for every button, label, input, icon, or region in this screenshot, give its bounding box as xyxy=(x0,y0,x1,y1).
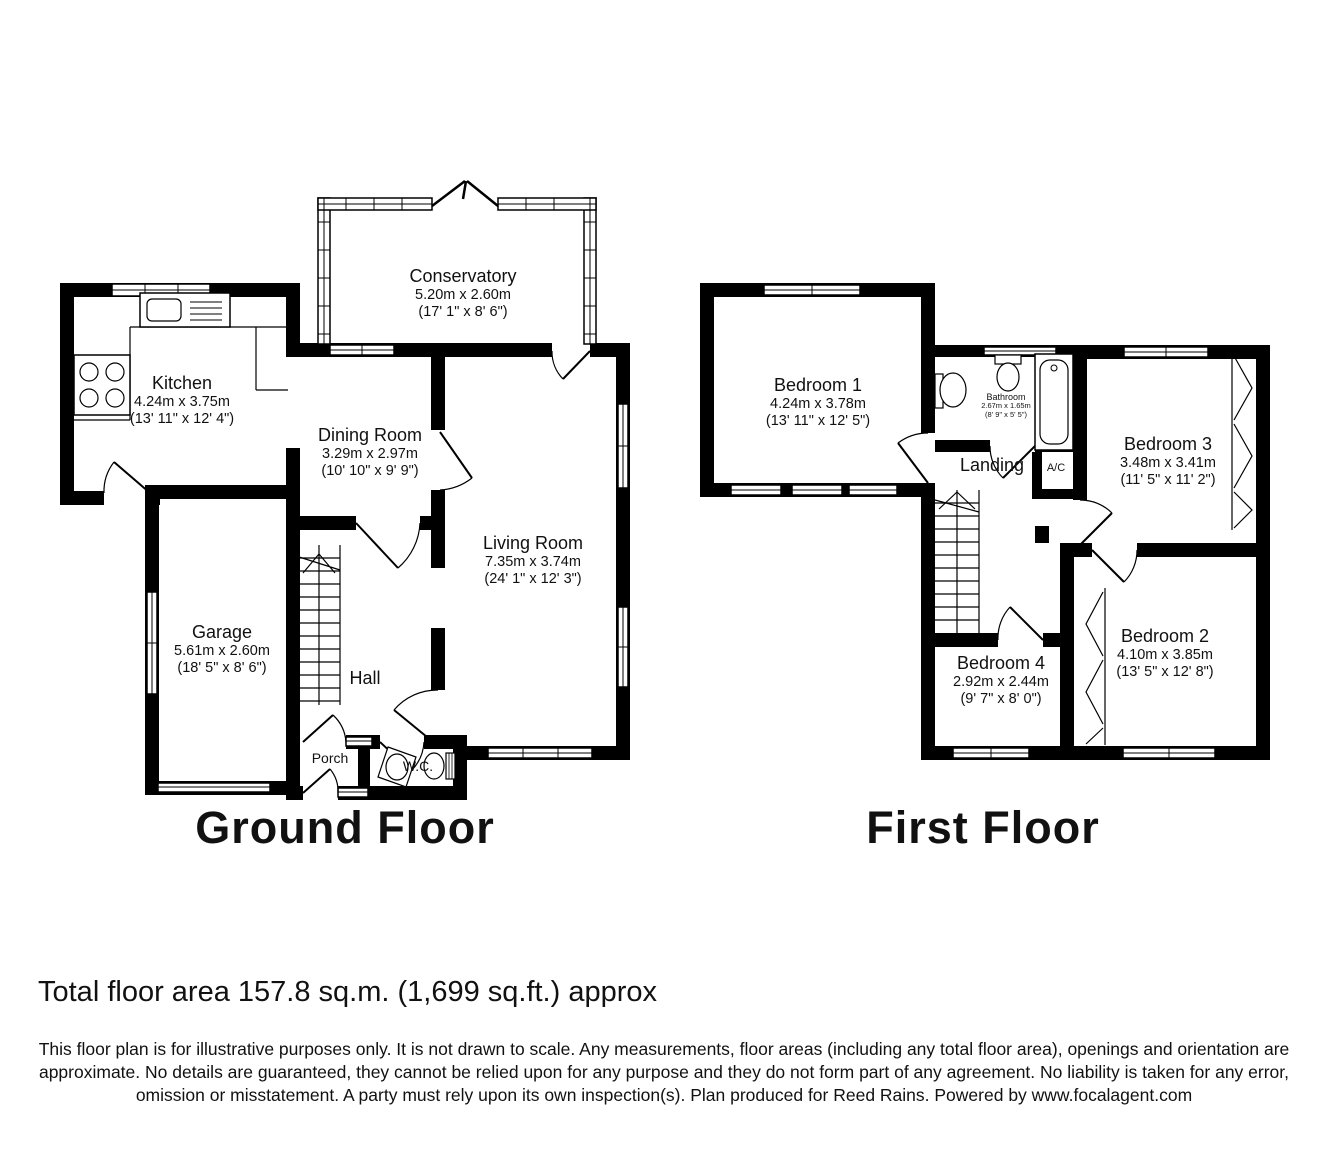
room-label-bathroom: Bathroom 2.67m x 1.65m (8' 9" x 5' 5") xyxy=(981,392,1031,420)
room-label-bedroom-2: Bedroom 2 4.10m x 3.85m (13' 5" x 12' 8"… xyxy=(1116,626,1213,681)
ground-floor-stairs xyxy=(296,545,340,705)
first-floor-stairs xyxy=(935,490,979,633)
floorplan-page: Conservatory 5.20m x 2.60m (17' 1" x 8' … xyxy=(0,0,1328,1151)
kitchen-hob-icon xyxy=(74,355,130,415)
room-label-bedroom-4: Bedroom 4 2.92m x 2.44m (9' 7" x 8' 0") xyxy=(953,653,1049,708)
room-label-kitchen: Kitchen 4.24m x 3.75m (13' 11" x 12' 4") xyxy=(130,373,234,428)
room-label-conservatory: Conservatory 5.20m x 2.60m (17' 1" x 8' … xyxy=(409,266,516,321)
first-floor-title: First Floor xyxy=(866,802,1100,854)
bathroom-bath-icon xyxy=(1035,354,1073,450)
room-label-hall: Hall xyxy=(349,668,380,689)
room-label-living-room: Living Room 7.35m x 3.74m (24' 1" x 12' … xyxy=(483,533,583,588)
bedroom2-wardrobe-doors xyxy=(1086,588,1105,745)
room-label-porch: Porch xyxy=(312,750,349,766)
room-label-garage: Garage 5.61m x 2.60m (18' 5" x 8' 6") xyxy=(174,622,270,677)
conservatory-roof-peak xyxy=(432,181,498,206)
total-area-text: Total floor area 157.8 sq.m. (1,699 sq.f… xyxy=(38,976,657,1009)
room-label-bedroom-3: Bedroom 3 3.48m x 3.41m (11' 5" x 11' 2"… xyxy=(1120,434,1216,489)
room-label-wc: W.C. xyxy=(403,758,433,774)
bedroom3-wardrobe-doors xyxy=(1232,352,1252,530)
bathroom-toilet-icon xyxy=(995,355,1021,391)
room-label-ac-cupboard: A/C xyxy=(1047,462,1065,475)
room-label-landing: Landing xyxy=(960,455,1024,476)
disclaimer-text: This floor plan is for illustrative purp… xyxy=(34,1038,1294,1107)
bathroom-basin-icon xyxy=(935,373,966,408)
ground-floor-title: Ground Floor xyxy=(195,802,494,854)
kitchen-sink-icon xyxy=(140,293,230,327)
room-label-bedroom-1: Bedroom 1 4.24m x 3.78m (13' 11" x 12' 5… xyxy=(766,375,870,430)
room-label-dining-room: Dining Room 3.29m x 2.97m (10' 10" x 9' … xyxy=(318,425,422,480)
